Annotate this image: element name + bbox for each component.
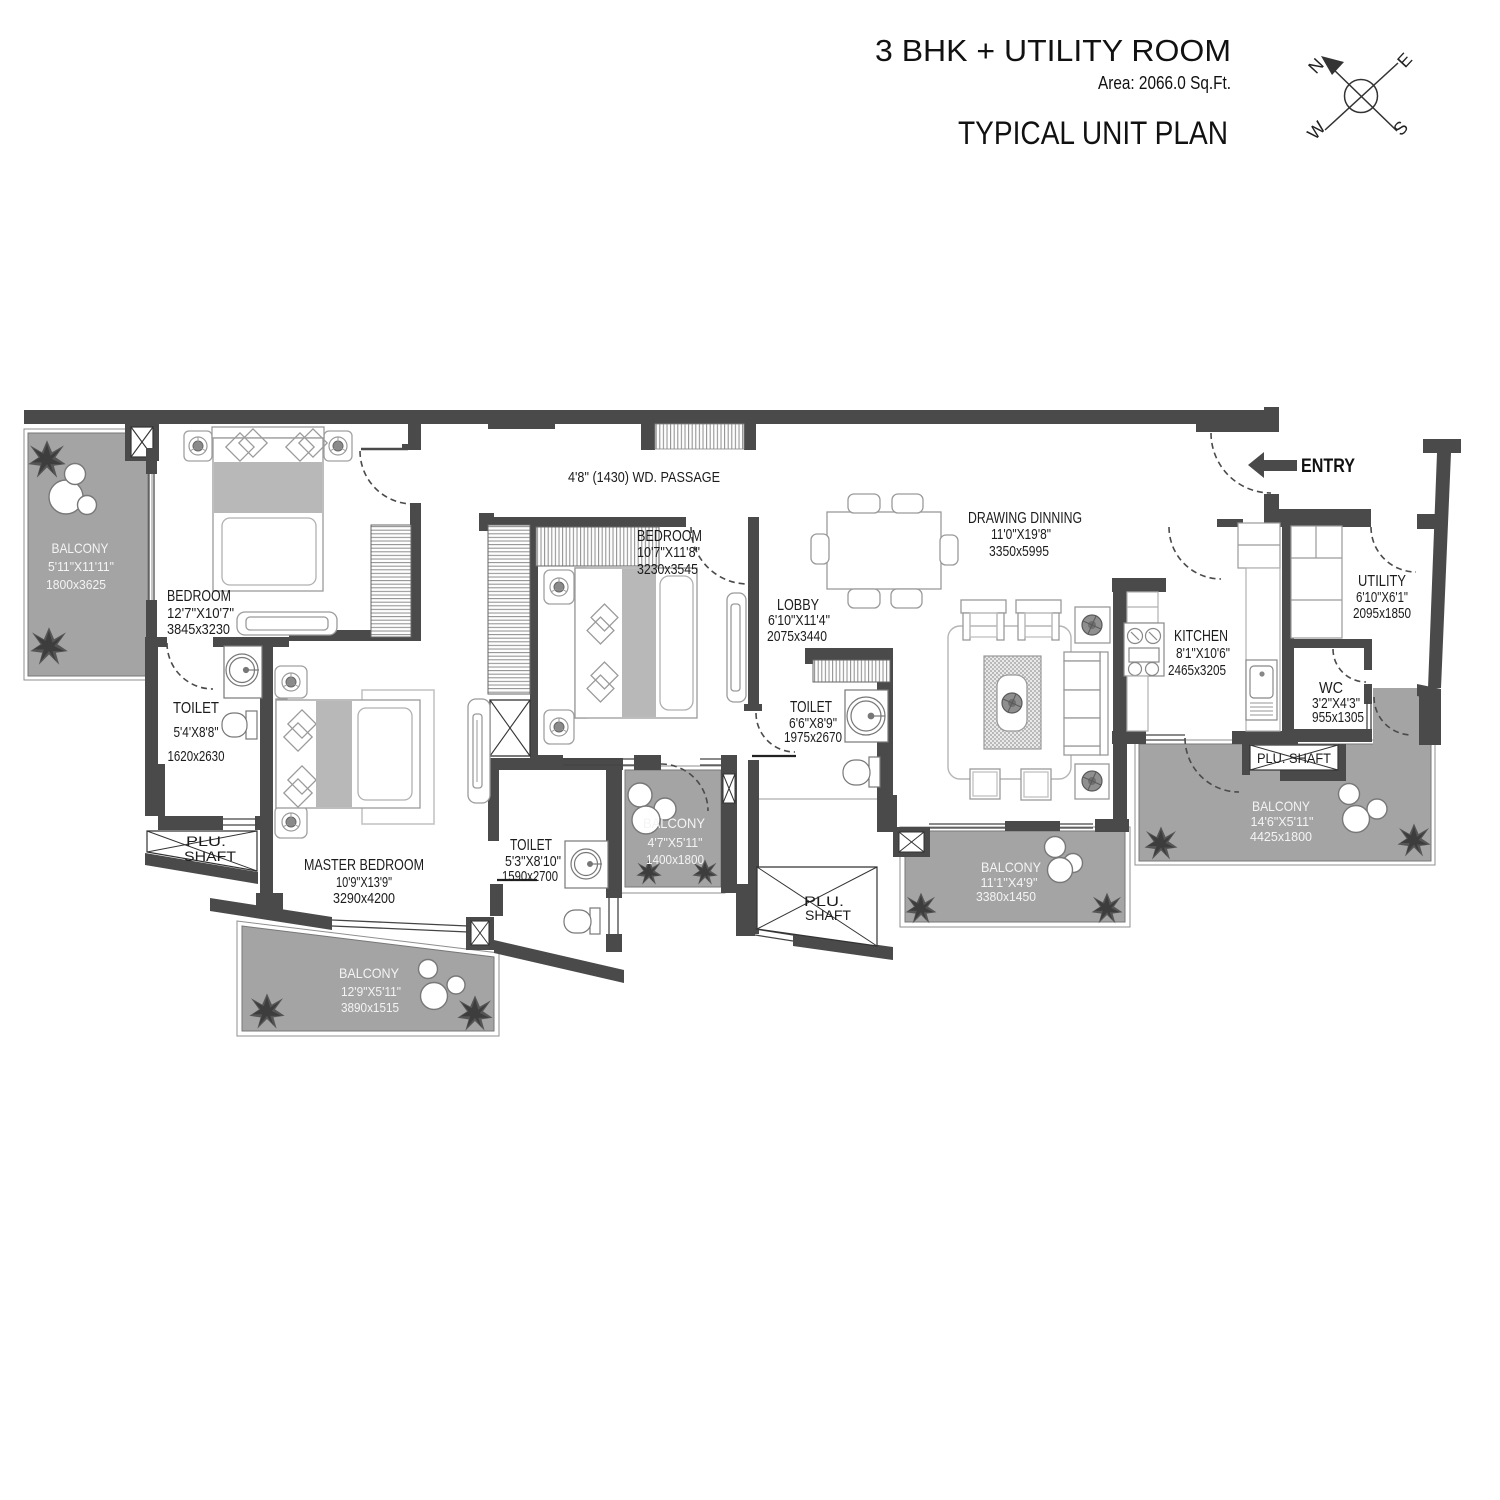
svg-text:1400x1800: 1400x1800 bbox=[646, 852, 704, 867]
svg-text:1800x3625: 1800x3625 bbox=[46, 577, 106, 592]
svg-text:1590x2700: 1590x2700 bbox=[502, 868, 558, 885]
svg-text:TOILET: TOILET bbox=[173, 700, 219, 717]
svg-text:TOILET: TOILET bbox=[790, 699, 832, 716]
svg-text:11'0"X19'8": 11'0"X19'8" bbox=[991, 526, 1051, 543]
svg-text:10'7"X11'8": 10'7"X11'8" bbox=[637, 544, 700, 561]
svg-text:PLU.: PLU. bbox=[186, 833, 226, 849]
svg-text:12'9"X5'11": 12'9"X5'11" bbox=[341, 984, 401, 999]
svg-text:2465x3205: 2465x3205 bbox=[1168, 662, 1226, 679]
svg-text:8'1"X10'6": 8'1"X10'6" bbox=[1176, 645, 1230, 662]
svg-text:2075x3440: 2075x3440 bbox=[767, 628, 827, 645]
svg-text:6'10"X6'1": 6'10"X6'1" bbox=[1356, 589, 1408, 606]
svg-text:BALCONY: BALCONY bbox=[643, 815, 706, 831]
svg-text:MASTER BEDROOM: MASTER BEDROOM bbox=[304, 857, 424, 874]
svg-text:1975x2670: 1975x2670 bbox=[784, 729, 842, 746]
svg-text:1620x2630: 1620x2630 bbox=[168, 748, 225, 765]
svg-text:4425x1800: 4425x1800 bbox=[1250, 829, 1312, 844]
svg-text:PLU. SHAFT: PLU. SHAFT bbox=[1257, 751, 1331, 766]
svg-text:3845x3230: 3845x3230 bbox=[167, 621, 230, 638]
svg-text:SHAFT: SHAFT bbox=[805, 907, 851, 923]
svg-text:BALCONY: BALCONY bbox=[1252, 798, 1311, 814]
svg-text:3350x5995: 3350x5995 bbox=[989, 543, 1049, 560]
svg-text:ENTRY: ENTRY bbox=[1301, 456, 1355, 477]
svg-text:BALCONY: BALCONY bbox=[339, 965, 400, 981]
svg-text:TOILET: TOILET bbox=[510, 837, 552, 854]
svg-text:BEDROOM: BEDROOM bbox=[167, 588, 231, 605]
svg-text:UTILITY: UTILITY bbox=[1358, 573, 1406, 590]
svg-text:SHAFT: SHAFT bbox=[184, 848, 237, 864]
svg-text:DRAWING DINNING: DRAWING DINNING bbox=[968, 510, 1082, 527]
svg-text:11'1"X4'9": 11'1"X4'9" bbox=[981, 875, 1038, 890]
svg-text:5'11"X11'11": 5'11"X11'11" bbox=[48, 559, 114, 574]
svg-text:3380x1450: 3380x1450 bbox=[976, 889, 1036, 904]
svg-text:6'10"X11'4": 6'10"X11'4" bbox=[768, 612, 830, 629]
svg-text:5'4'X8'8": 5'4'X8'8" bbox=[174, 724, 219, 741]
svg-text:TYPICAL UNIT PLAN: TYPICAL UNIT PLAN bbox=[958, 115, 1228, 151]
svg-text:Area: 2066.0 Sq.Ft.: Area: 2066.0 Sq.Ft. bbox=[1098, 73, 1231, 93]
svg-text:4'8" (1430) WD. PASSAGE: 4'8" (1430) WD. PASSAGE bbox=[568, 469, 720, 486]
svg-text:4'7"X5'11": 4'7"X5'11" bbox=[648, 835, 703, 850]
svg-text:3290x4200: 3290x4200 bbox=[333, 890, 395, 907]
svg-text:BEDROOM: BEDROOM bbox=[637, 528, 702, 545]
svg-text:3230x3545: 3230x3545 bbox=[637, 561, 698, 578]
svg-text:BALCONY: BALCONY bbox=[52, 540, 110, 556]
svg-text:955x1305: 955x1305 bbox=[1312, 709, 1364, 726]
svg-text:2095x1850: 2095x1850 bbox=[1353, 605, 1411, 622]
svg-text:14'6"X5'11": 14'6"X5'11" bbox=[1251, 814, 1314, 829]
svg-text:KITCHEN: KITCHEN bbox=[1174, 628, 1228, 645]
svg-text:10'9"X13'9": 10'9"X13'9" bbox=[336, 874, 392, 891]
svg-text:3890x1515: 3890x1515 bbox=[341, 1000, 399, 1015]
svg-text:12'7"X10'7": 12'7"X10'7" bbox=[167, 605, 234, 622]
svg-text:BALCONY: BALCONY bbox=[981, 859, 1042, 875]
svg-text:3 BHK + UTILITY ROOM: 3 BHK + UTILITY ROOM bbox=[875, 33, 1231, 68]
